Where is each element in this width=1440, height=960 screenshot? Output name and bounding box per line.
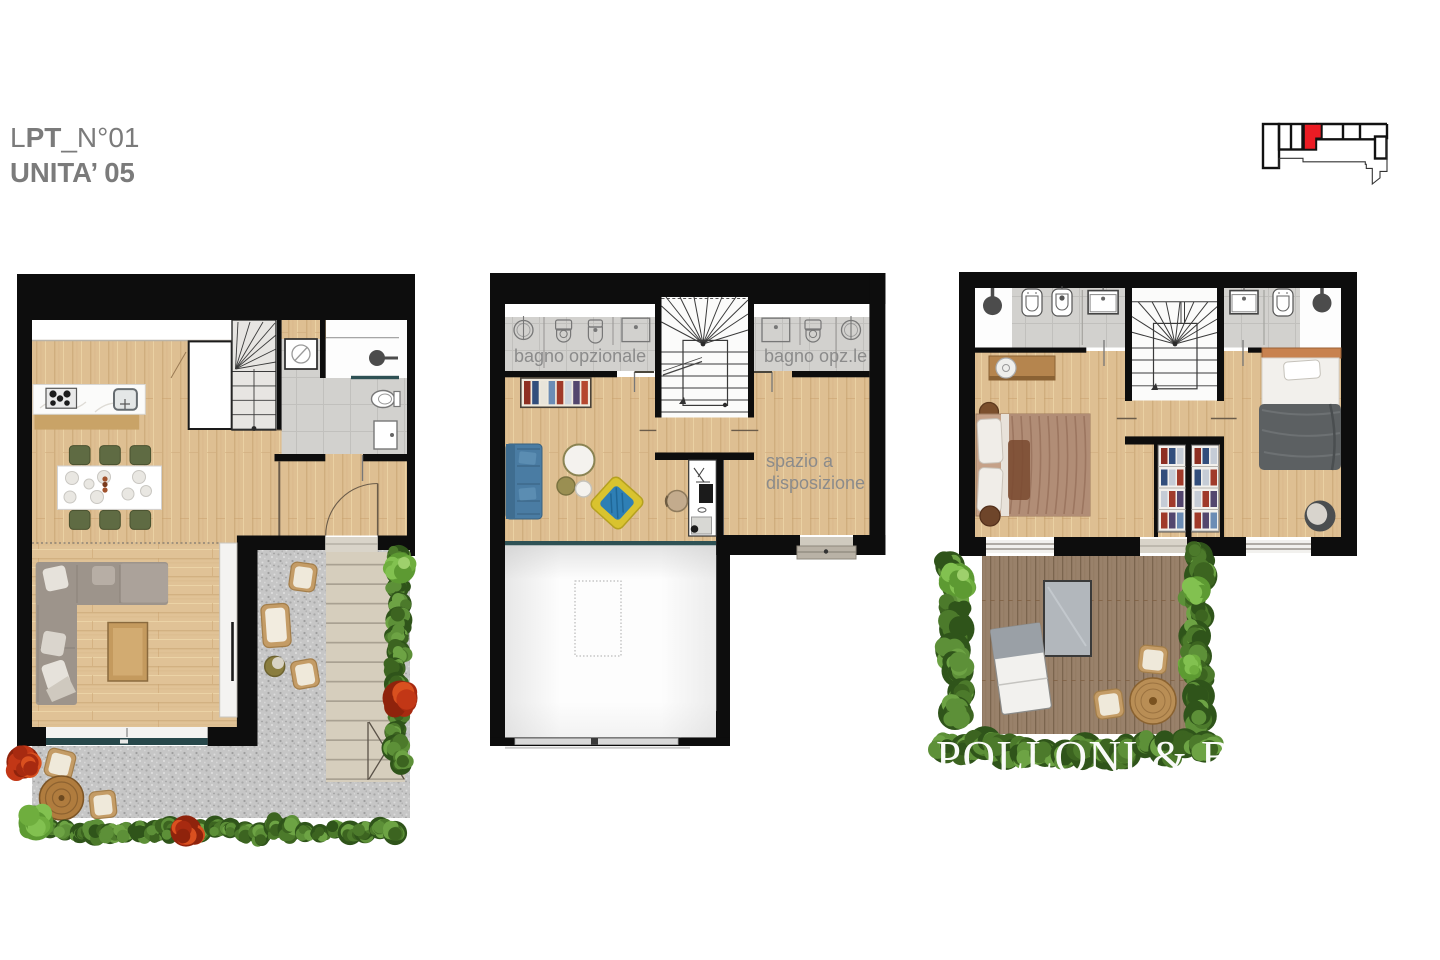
svg-text:bagno opz.le: bagno opz.le [764, 346, 867, 366]
svg-text:bagno opzionale: bagno opzionale [514, 346, 646, 366]
svg-text:LPT_N°01: LPT_N°01 [10, 122, 140, 153]
svg-text:UNITA’ 05: UNITA’ 05 [10, 157, 135, 188]
svg-text:disposizione: disposizione [766, 473, 865, 493]
svg-text:spazio a: spazio a [766, 451, 834, 471]
svg-text:POLLONI & BARNI: POLLONI & BARNI [936, 732, 1349, 782]
